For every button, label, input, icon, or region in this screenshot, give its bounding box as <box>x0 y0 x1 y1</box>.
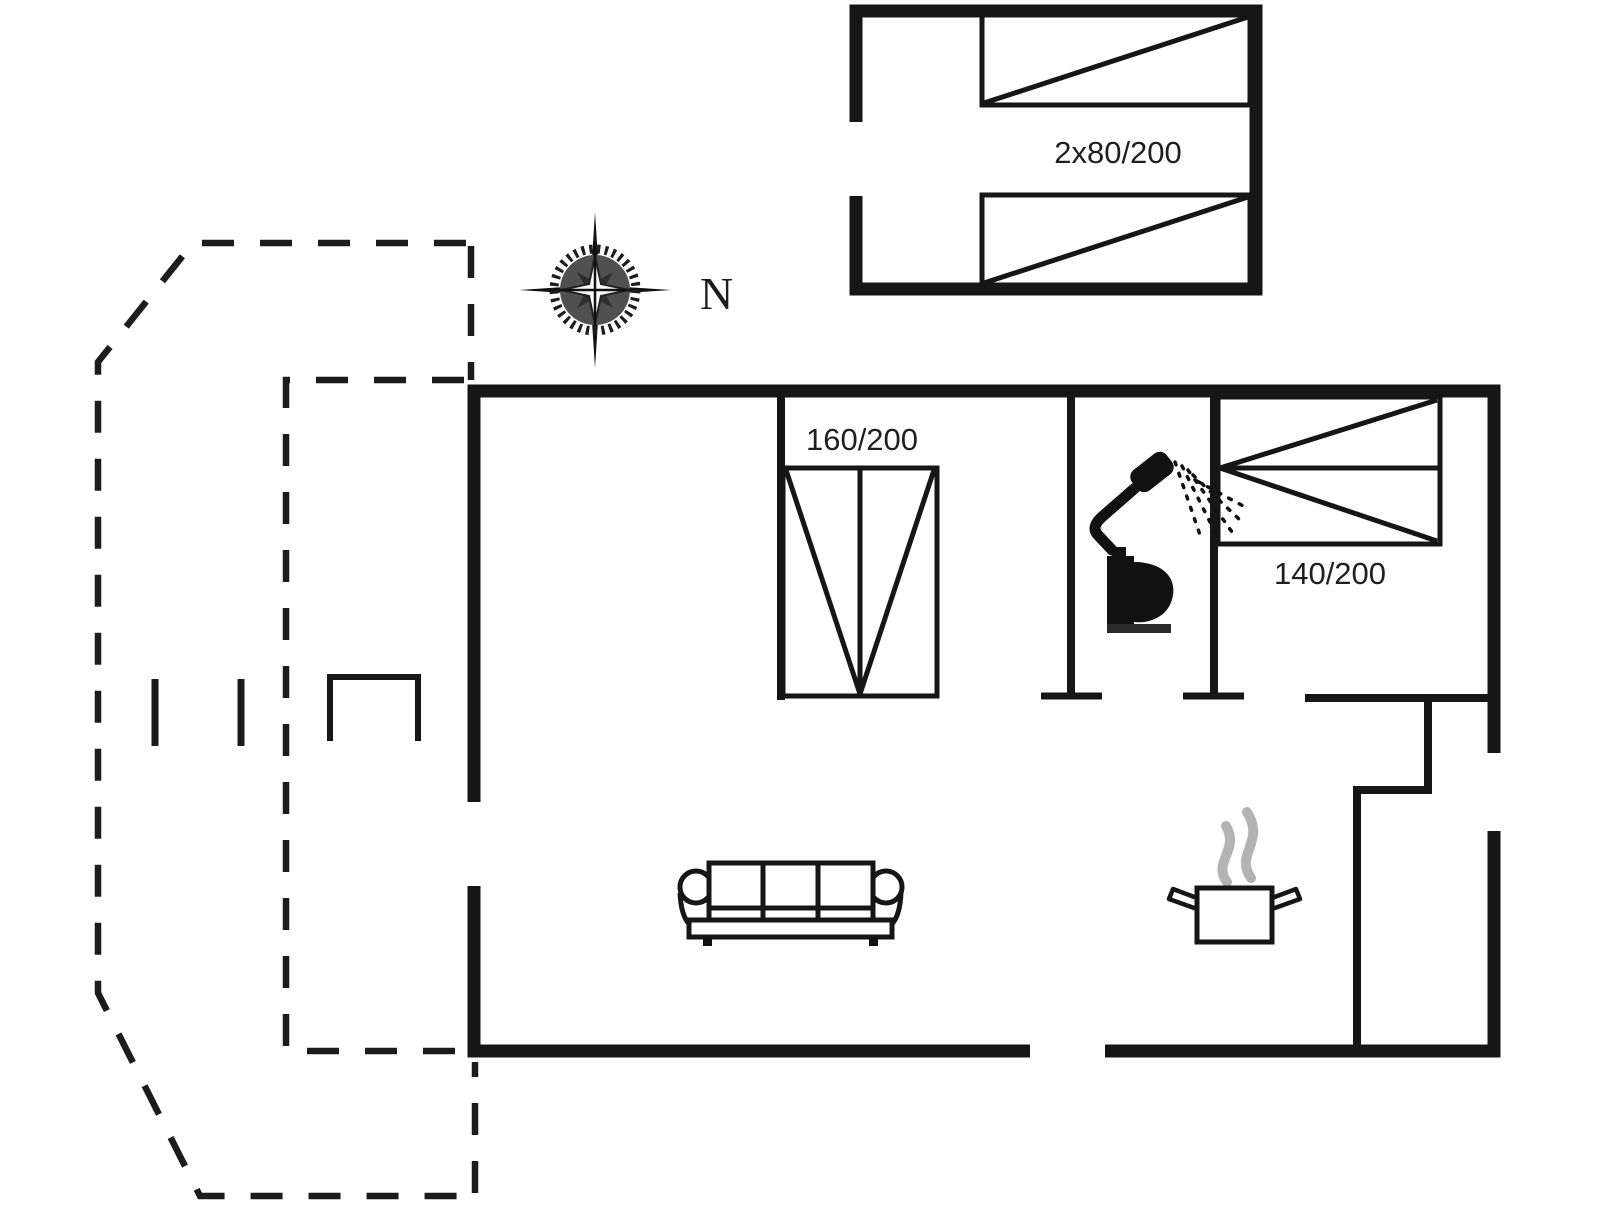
wall-top-and-sides <box>474 391 1494 802</box>
bed-duvet-line <box>984 197 1248 283</box>
sofa-foot-right <box>869 937 878 946</box>
bed-160-200: 160/200 <box>783 422 937 696</box>
cooking-pot-icon <box>1169 812 1300 942</box>
terrace-step <box>330 677 418 741</box>
bed-duvet-line-top <box>1220 400 1437 468</box>
toilet-tank <box>1107 556 1134 624</box>
bed-duvet-line-bottom <box>1220 468 1437 541</box>
steam-icon <box>1222 826 1230 882</box>
interior-walls <box>781 397 1490 1051</box>
annex-bed-bottom <box>982 195 1250 285</box>
main-building-walls <box>474 391 1494 1051</box>
bed-140-200-label: 140/200 <box>1274 556 1386 591</box>
shower-spray <box>1175 462 1200 535</box>
bed-duvet-line-right <box>860 470 934 694</box>
pot-body <box>1197 888 1272 942</box>
sofa-icon <box>680 863 902 946</box>
sofa-base <box>689 920 892 937</box>
compass-rose-icon <box>519 212 671 368</box>
pot-handle-left <box>1169 889 1197 909</box>
bed-140-200: 140/200 <box>1218 397 1440 591</box>
shower-arm <box>1095 488 1135 550</box>
toilet-button <box>1112 547 1126 557</box>
bed-duvet-line <box>984 17 1248 103</box>
terrace-outline <box>98 243 475 1196</box>
annex-room: 2x80/200 <box>856 11 1256 289</box>
entrance-room-wall <box>1357 698 1428 1051</box>
sofa-back-cushions <box>709 863 873 908</box>
toilet-icon <box>1107 547 1173 633</box>
shower-icon <box>1095 448 1247 550</box>
sofa-foot-left <box>703 937 712 946</box>
bed-160-200-label: 160/200 <box>806 422 918 457</box>
bed-duvet-line-left <box>786 470 860 694</box>
sofa-seat-strip <box>709 908 873 920</box>
north-label: N <box>700 268 733 319</box>
annex-bed-top <box>982 15 1250 105</box>
floor-plan-canvas: N 2x80/200 160/200 <box>0 0 1606 1205</box>
annex-bed-label: 2x80/200 <box>1054 135 1182 170</box>
terrace-inner-boundary <box>286 380 464 1051</box>
steam-icon <box>1246 812 1253 878</box>
toilet-bowl <box>1134 562 1173 622</box>
pot-handle-right <box>1272 889 1300 909</box>
toilet-base <box>1107 624 1171 633</box>
wall-bottom-right <box>1105 831 1494 1051</box>
